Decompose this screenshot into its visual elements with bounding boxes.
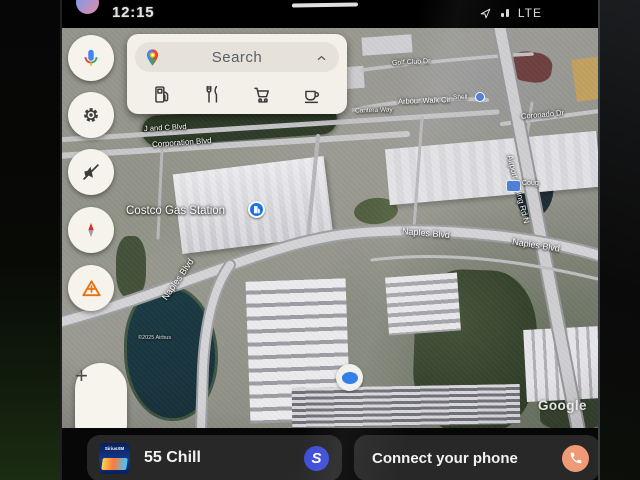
poi-label: Coug bbox=[522, 180, 539, 187]
connect-phone-title: Connect your phone bbox=[372, 450, 562, 467]
mute-button[interactable] bbox=[68, 149, 114, 195]
poi-label-shell: Shell bbox=[453, 94, 467, 101]
category-restaurants-button[interactable] bbox=[195, 79, 229, 109]
album-art-brand: SiriusXM bbox=[99, 446, 130, 451]
zoom-control: + − bbox=[75, 363, 127, 428]
volume-muted-icon bbox=[80, 161, 102, 183]
compass-button[interactable] bbox=[68, 207, 114, 253]
gas-station-icon bbox=[152, 84, 173, 105]
location-arrow-icon bbox=[479, 7, 492, 20]
restaurant-icon bbox=[202, 84, 223, 105]
bottom-bar: SiriusXM 55 Chill S Connect your phone bbox=[62, 428, 598, 480]
compass-icon bbox=[81, 220, 101, 240]
coffee-icon bbox=[302, 84, 323, 105]
settings-button[interactable] bbox=[68, 92, 114, 138]
google-maps-pin-icon bbox=[145, 48, 160, 67]
gear-icon bbox=[80, 104, 102, 126]
zoom-out-button[interactable]: − bbox=[75, 363, 88, 389]
search-panel: Search bbox=[127, 34, 347, 114]
phone-button[interactable] bbox=[562, 445, 589, 472]
phone-screen: 12:15 LTE bbox=[60, 0, 600, 480]
poi-pin[interactable] bbox=[475, 92, 485, 102]
photo-background-right bbox=[600, 0, 640, 480]
google-watermark: Google bbox=[538, 398, 587, 413]
clock: 12:15 bbox=[112, 4, 154, 21]
report-button[interactable] bbox=[68, 265, 114, 311]
signal-bars-icon bbox=[501, 9, 509, 17]
photo-background-left bbox=[0, 0, 60, 480]
category-row bbox=[137, 78, 337, 110]
shopping-cart-icon bbox=[252, 84, 273, 105]
network-type: LTE bbox=[518, 6, 542, 20]
poi-pin[interactable] bbox=[506, 180, 521, 192]
search-field[interactable]: Search bbox=[135, 42, 339, 72]
voice-search-button[interactable] bbox=[68, 35, 114, 81]
status-icons: LTE bbox=[479, 6, 542, 20]
album-art-graphic bbox=[101, 458, 128, 470]
road-label: Arbour Walk Cir bbox=[398, 95, 451, 106]
chevron-up-icon[interactable] bbox=[314, 50, 329, 65]
media-title: 55 Chill bbox=[144, 449, 304, 467]
search-placeholder: Search bbox=[160, 49, 314, 66]
poi-label-costco-gas: Costco Gas Station bbox=[126, 205, 225, 217]
road-label: Cantera Way bbox=[355, 106, 393, 114]
category-shopping-button[interactable] bbox=[245, 79, 279, 109]
microphone-icon bbox=[80, 47, 102, 69]
album-art: SiriusXM bbox=[99, 443, 130, 474]
category-gas-stations-button[interactable] bbox=[145, 79, 179, 109]
gas-pump-pin[interactable] bbox=[248, 201, 265, 218]
imagery-copyright: ©2025 Airbus bbox=[138, 335, 171, 341]
connect-phone-card[interactable]: Connect your phone bbox=[354, 435, 598, 480]
current-location-dot bbox=[336, 364, 363, 391]
media-app-icon[interactable]: S bbox=[304, 446, 329, 471]
category-coffee-button[interactable] bbox=[295, 79, 329, 109]
media-card[interactable]: SiriusXM 55 Chill S bbox=[87, 435, 342, 480]
hazard-triangle-icon bbox=[80, 277, 103, 300]
phone-icon bbox=[569, 451, 583, 465]
avatar bbox=[76, 0, 99, 14]
